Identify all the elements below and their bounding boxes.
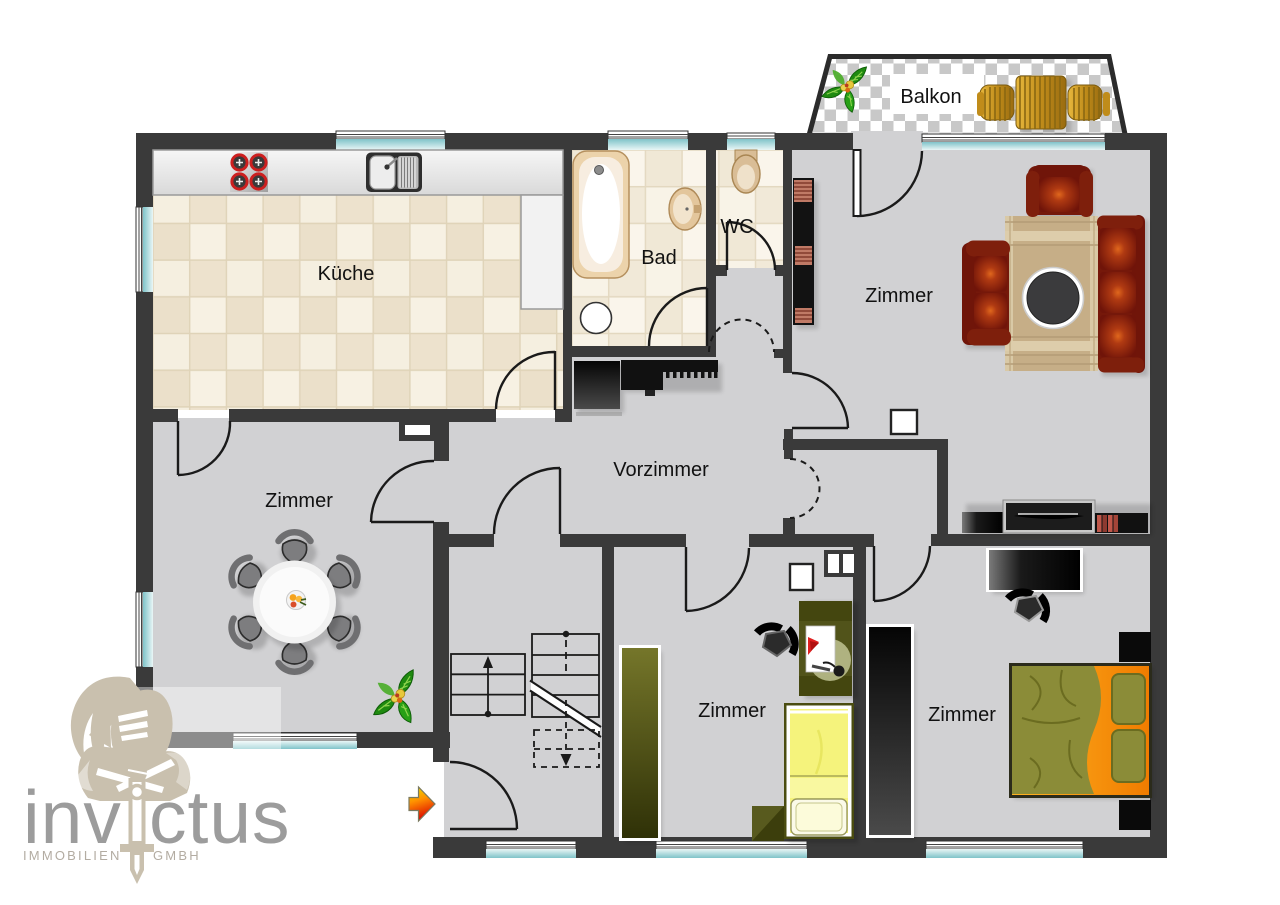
svg-text:GMBH: GMBH <box>153 848 201 863</box>
svg-text:Vorzimmer: Vorzimmer <box>613 459 709 481</box>
svg-text:Bad: Bad <box>641 247 677 269</box>
svg-text:Zimmer: Zimmer <box>698 700 766 722</box>
svg-text:Zimmer: Zimmer <box>928 704 996 726</box>
svg-text:WC: WC <box>720 216 753 238</box>
svg-text:Balkon: Balkon <box>900 86 961 108</box>
svg-text:ctus: ctus <box>149 775 291 859</box>
svg-text:Küche: Küche <box>318 263 375 285</box>
svg-text:inv: inv <box>23 775 122 859</box>
svg-text:Zimmer: Zimmer <box>865 285 933 307</box>
svg-text:Zimmer: Zimmer <box>265 490 333 512</box>
svg-text:IMMOBILIEN: IMMOBILIEN <box>23 848 122 863</box>
